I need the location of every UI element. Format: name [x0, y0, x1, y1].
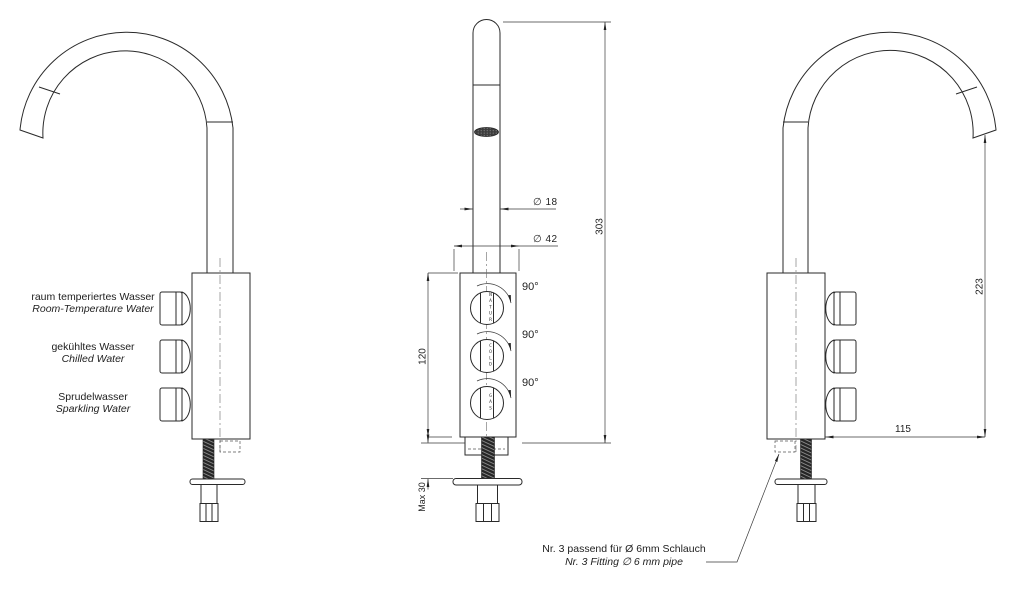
note-leader-line — [706, 454, 779, 562]
threaded-rod — [482, 437, 495, 479]
hose-fitting-hidden — [775, 441, 795, 452]
fitting-note-de: Nr. 3 passend für Ø 6mm Schlauch — [538, 543, 710, 556]
knob-side-3 — [826, 388, 856, 421]
spacer — [798, 485, 815, 504]
hex-nut — [476, 504, 499, 522]
fitting-note: Nr. 3 passend für Ø 6mm Schlauch Nr. 3 F… — [538, 543, 710, 569]
knob-side-1 — [826, 292, 856, 325]
hose-fitting-hidden — [220, 441, 240, 452]
rotation-label-2: 90° — [522, 329, 556, 341]
spacer — [201, 485, 217, 504]
hex-nut — [797, 504, 816, 522]
label-en: Chilled Water — [0, 353, 186, 365]
left-view-drawing — [20, 32, 250, 521]
spacer — [478, 485, 498, 504]
aerator — [475, 128, 499, 137]
dim-base-diameter: ∅ 42 — [533, 234, 558, 245]
water-type-label-chilled: gekühltes Wasser Chilled Water — [0, 341, 186, 365]
technical-drawing-page: .ln{fill:none;stroke:#2a2a2a;stroke-widt… — [0, 0, 1024, 590]
label-en: Sparkling Water — [0, 403, 186, 415]
mounting-flange — [775, 479, 827, 485]
dim-total-height: 303 — [595, 215, 606, 239]
rotation-label-3: 90° — [522, 377, 556, 389]
front-view-drawing — [421, 20, 611, 522]
threaded-rod — [203, 439, 214, 480]
rotation-label-1: 90° — [522, 281, 556, 293]
label-de: Sprudelwasser — [0, 391, 186, 403]
label-de: gekühltes Wasser — [0, 341, 186, 353]
dim-max-counter-thickness: Max 30 — [417, 477, 427, 517]
mounting-flange — [453, 479, 522, 486]
dim-reach: 115 — [888, 424, 918, 435]
threaded-rod — [801, 439, 812, 480]
dim-body-height: 120 — [418, 345, 429, 369]
right-view-drawing — [706, 32, 996, 562]
label-en: Room-Temperature Water — [0, 303, 186, 315]
knob-label-natur: NATUR — [480, 293, 493, 324]
hex-nut — [200, 504, 218, 522]
dim-spout-diameter: ∅ 18 — [533, 197, 558, 208]
water-type-label-sparkling: Sprudelwasser Sparkling Water — [0, 391, 186, 415]
label-de: raum temperiertes Wasser — [0, 291, 186, 303]
dim-outlet-height: 223 — [975, 275, 986, 299]
knob-label-cold: COLD — [480, 341, 493, 372]
knob-side-2 — [826, 340, 856, 373]
spout-outline — [783, 32, 996, 274]
valve-body — [192, 273, 250, 439]
knob-label-gas: GAS — [480, 388, 493, 419]
spout-pipe — [473, 20, 500, 275]
water-type-label-room-temperature: raum temperiertes Wasser Room-Temperatur… — [0, 291, 186, 315]
spout-outline — [20, 32, 233, 274]
mounting-flange — [190, 479, 245, 485]
fitting-note-en: Nr. 3 Fitting ∅ 6 mm pipe — [538, 556, 710, 569]
